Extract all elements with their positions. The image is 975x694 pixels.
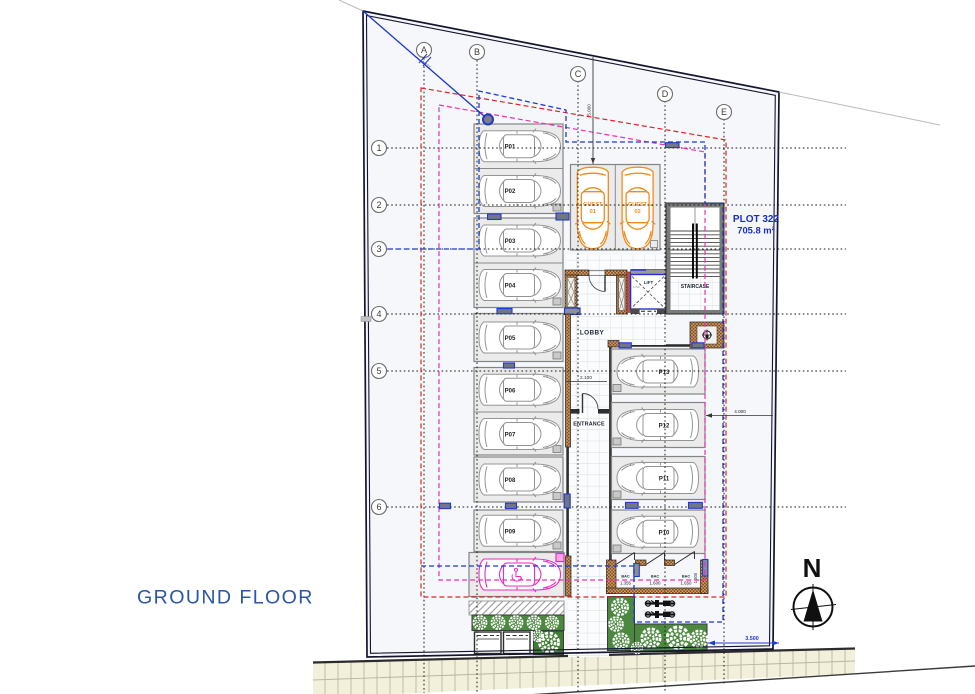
svg-text:4.000: 4.000: [734, 409, 746, 414]
svg-text:P08: P08: [505, 478, 516, 484]
svg-text:BAC: BAC: [651, 575, 659, 579]
svg-text:P05: P05: [505, 336, 516, 342]
svg-text:1.355: 1.355: [620, 581, 632, 586]
svg-text:3: 3: [376, 244, 381, 254]
svg-text:P02: P02: [505, 189, 516, 195]
svg-text:BAC: BAC: [621, 575, 629, 579]
svg-text:BAC: BAC: [682, 575, 690, 579]
svg-text:LOBBY: LOBBY: [580, 330, 605, 337]
svg-text:P03: P03: [505, 239, 516, 245]
svg-text:P11: P11: [659, 477, 670, 483]
svg-text:P06: P06: [505, 388, 516, 394]
svg-text:2.100: 2.100: [580, 375, 592, 381]
svg-text:P07: P07: [505, 433, 516, 439]
svg-text:C: C: [575, 69, 582, 79]
svg-text:1.300: 1.300: [693, 572, 698, 583]
svg-text:5: 5: [376, 366, 381, 376]
svg-text:705.8 m²: 705.8 m²: [737, 225, 775, 236]
svg-text:1.600: 1.600: [650, 581, 662, 586]
svg-text:1: 1: [376, 143, 381, 153]
svg-text:P10: P10: [659, 530, 670, 536]
svg-text:LIFT: LIFT: [644, 280, 654, 285]
svg-text:E: E: [721, 107, 727, 117]
svg-text:N: N: [803, 553, 822, 583]
svg-text:2: 2: [376, 200, 381, 210]
svg-text:02: 02: [634, 209, 640, 215]
svg-text:4: 4: [376, 309, 381, 319]
svg-text:6: 6: [376, 502, 381, 512]
svg-text:P09: P09: [505, 529, 516, 535]
svg-text:1.6m²: 1.6m²: [633, 285, 640, 289]
svg-text:P12: P12: [659, 424, 670, 430]
svg-text:GROUND FLOOR: GROUND FLOOR: [137, 587, 314, 609]
svg-text:A: A: [421, 45, 427, 55]
svg-text:1.650: 1.650: [681, 581, 693, 586]
svg-text:B: B: [474, 47, 480, 57]
svg-text:D: D: [662, 89, 669, 99]
svg-text:P04: P04: [505, 284, 516, 290]
svg-text:3.500: 3.500: [745, 636, 759, 642]
svg-text:01: 01: [590, 209, 596, 215]
svg-text:5.000: 5.000: [587, 104, 592, 116]
svg-text:PLOT 322: PLOT 322: [733, 214, 780, 225]
